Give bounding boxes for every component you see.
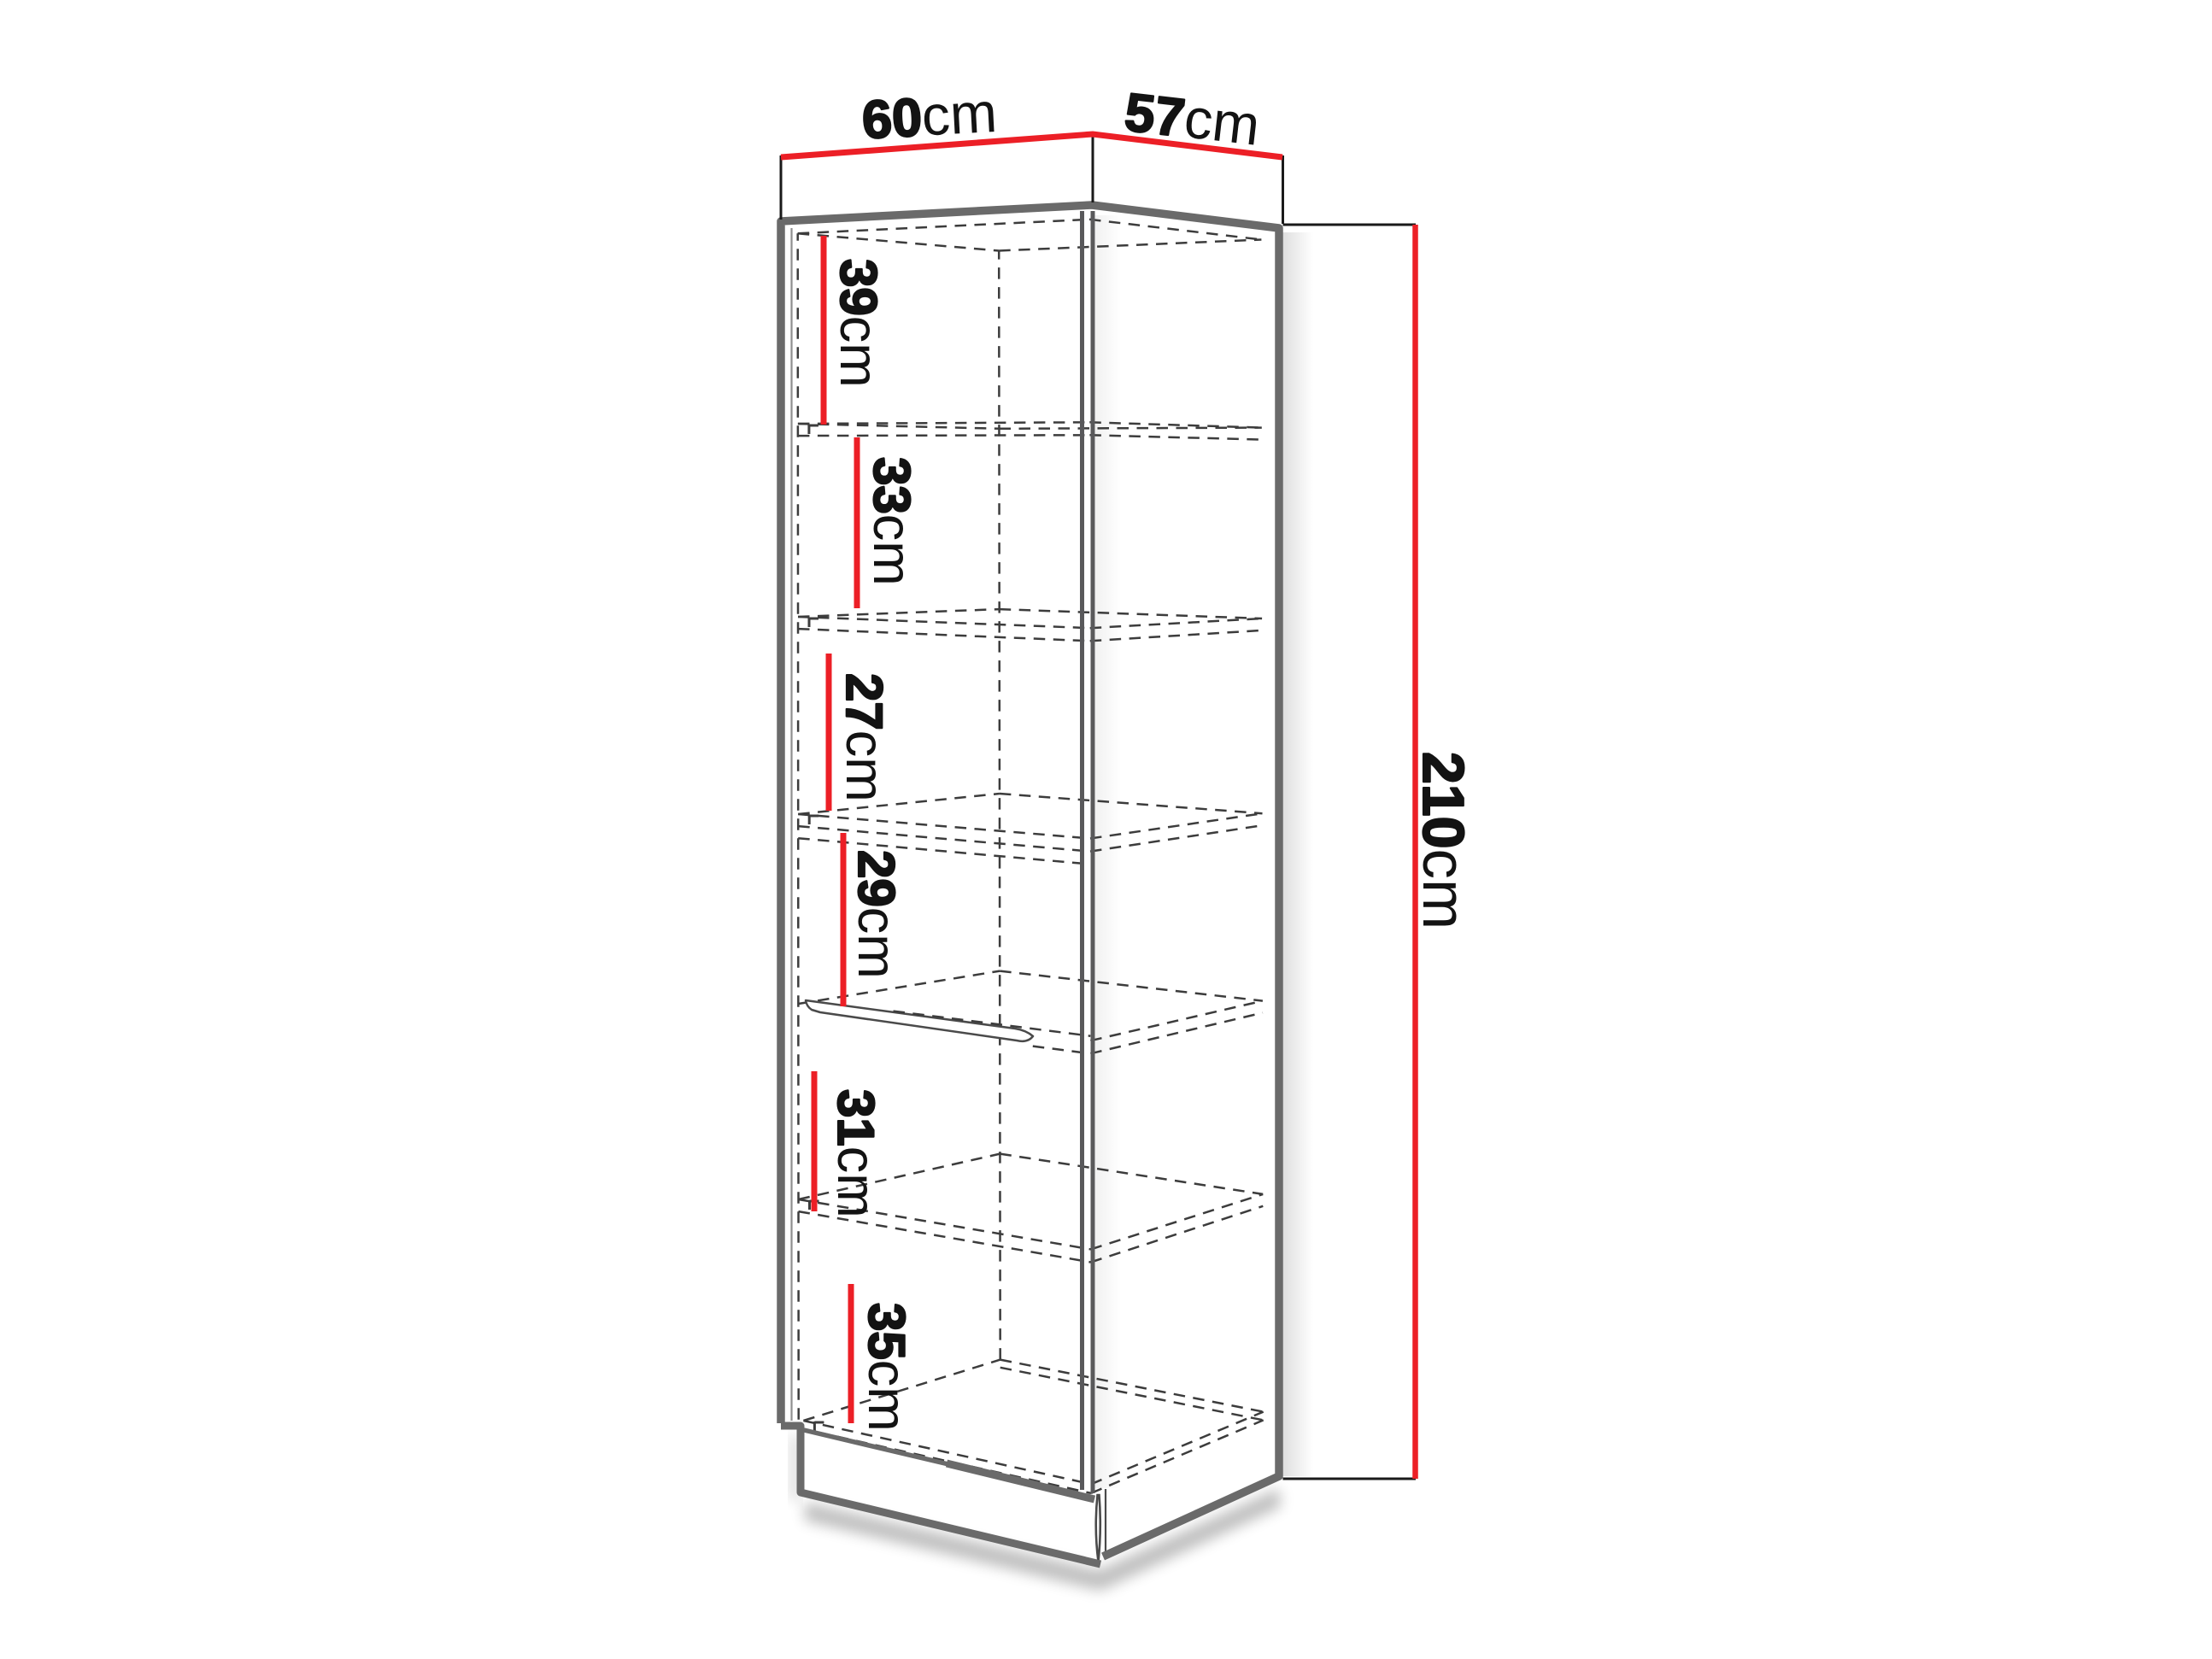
svg-text:60cm: 60cm [860,80,999,150]
svg-text:27cm: 27cm [835,673,895,802]
svg-text:39cm: 39cm [829,259,889,388]
svg-text:31cm: 31cm [826,1089,886,1218]
svg-text:210cm: 210cm [1410,752,1477,929]
svg-text:29cm: 29cm [847,850,907,979]
svg-text:33cm: 33cm [862,457,922,586]
svg-text:35cm: 35cm [857,1303,917,1432]
